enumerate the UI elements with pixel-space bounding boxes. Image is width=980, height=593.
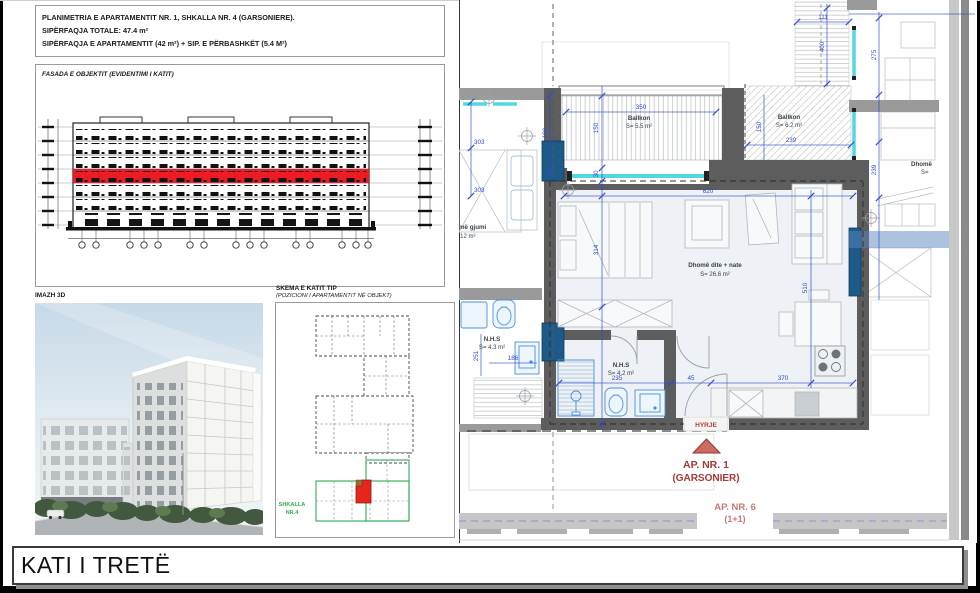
title-line-1: PLANIMETRIA E APARTAMENTIT NR. 1, SHKALL… — [42, 11, 444, 24]
corridor-band-left — [459, 513, 697, 529]
dim-239-h: 239 — [786, 137, 797, 144]
neighbor-terrace — [474, 378, 542, 418]
dim-239-v: 239 — [871, 164, 878, 175]
car-wheel — [49, 516, 52, 519]
balcony2-name: Ballkon — [778, 114, 801, 121]
stove — [815, 346, 845, 376]
dim-350: 350 — [636, 104, 647, 111]
balcony1-name: Ballkon — [628, 115, 651, 122]
dim-45: 45 — [687, 375, 695, 382]
axis-bubbles — [79, 242, 371, 248]
window-row — [76, 129, 366, 140]
floor-outline — [316, 316, 413, 463]
bath1-area: S= 4.2 m² — [608, 371, 634, 377]
facade-label: FASADA E OBJEKTIT (EVIDENTIMI I KATIT) — [42, 71, 174, 78]
roof-parapet — [290, 117, 332, 123]
balcony2-area: S= 6.2 m² — [776, 123, 802, 129]
dim-620: 620 — [703, 188, 714, 195]
corner-pillar — [253, 372, 261, 502]
axis-droplines — [82, 231, 368, 243]
title-block: PLANIMETRIA E APARTAMENTIT NR. 1, SHKALL… — [35, 5, 445, 57]
building-left-windows — [43, 423, 127, 497]
living-name: Dhomë dite + nate — [688, 262, 742, 269]
dim-150-r: 150 — [756, 121, 763, 132]
figure — [68, 221, 72, 227]
stair-label-2: NR.4 — [286, 510, 300, 516]
window-row — [76, 157, 366, 168]
highlighted-apartment-notch — [356, 480, 362, 486]
bath2-area: S= 4.3 m² — [479, 345, 505, 351]
main-building-lit-face — [187, 361, 255, 509]
dim-111: 111 — [818, 14, 828, 21]
roof-parapet — [100, 117, 142, 123]
bath1-name: N.H.S — [613, 362, 630, 369]
facade-drawing — [38, 105, 442, 251]
title-line-2: SIPËRFAQJA TOTALE: 47.4 m² — [42, 24, 444, 37]
car-wheel — [58, 516, 61, 519]
key-plan-subtitle: (POZICIONI I APARTAMENTIT NË OBJEKT) — [276, 293, 392, 299]
apartment1-label: AP. NR. 1 — [683, 459, 729, 471]
title-line-3: SIPËRFAQJA E APARTAMENTIT (42 m²) + SIP.… — [42, 37, 444, 50]
window-cap — [567, 171, 572, 181]
window-row-highlighted — [76, 171, 366, 182]
neighbor-room-area: S= — [921, 170, 929, 176]
dim-400: 400 — [819, 41, 826, 52]
dim-251: 251 — [473, 350, 480, 361]
dim-303a: 303 — [474, 139, 485, 146]
dim-275: 275 — [871, 49, 878, 60]
edge-strip-light — [949, 0, 959, 540]
car — [47, 510, 64, 517]
window-row — [76, 143, 366, 154]
stair-label-1: SHKALLA — [279, 502, 306, 508]
dim-314: 314 — [593, 244, 600, 255]
bath2-name: N.H.S — [484, 336, 501, 343]
balcony1-area: S= 5.5 m² — [626, 124, 652, 130]
dim-370: 370 — [778, 375, 789, 382]
dim-30: 30 — [593, 170, 600, 178]
image3d-label: IMAZH 3D — [35, 292, 65, 299]
sheet-title-bar: KATI I TRETË — [12, 546, 964, 585]
sheet-title: KATI I TRETË — [14, 552, 171, 579]
neighbor-room-name: Dhomë — [911, 161, 933, 168]
balcony1-railing — [559, 86, 724, 95]
render-3d — [35, 303, 263, 535]
corridor-band — [849, 231, 949, 248]
page-border-left — [0, 0, 3, 593]
key-plan-panel: SHKALLA NR.4 — [275, 302, 455, 538]
ground-line — [66, 227, 376, 231]
key-plan-title: SKEMA E KATIT TIP — [276, 285, 337, 292]
figure — [371, 221, 375, 227]
facade-panel: FASADA E OBJEKTIT (EVIDENTIMI I KATIT) — [35, 64, 445, 287]
architectural-sheet: { "title_block": { "line1": "PLANIMETRIA… — [0, 0, 980, 593]
edge-strip-dark — [961, 0, 969, 540]
window-row — [76, 199, 366, 210]
key-plan-drawing: SHKALLA NR.4 — [276, 303, 454, 537]
page-border-bottom — [0, 586, 980, 593]
dim-303b: 303 — [474, 187, 485, 194]
dim-510: 510 — [802, 282, 809, 293]
ap6-line2: (1+1) — [724, 514, 745, 524]
dim-150: 150 — [593, 122, 600, 133]
roof-parapet — [188, 117, 234, 123]
apartment1-type: (GARSONIER) — [672, 473, 739, 484]
neighbor-bedroom-name: Dhomë gjumi — [459, 224, 486, 231]
main-building-windows — [137, 383, 183, 511]
neighbor-bedroom-area: S= 12 m² — [459, 234, 476, 240]
dim-186: 186 — [508, 355, 519, 362]
window-row — [76, 185, 366, 196]
ap6-line1: AP. NR. 6 — [714, 502, 756, 513]
storefront-row — [76, 213, 366, 226]
dim-190: 190 — [542, 127, 549, 138]
living-area: S= 26.6 m² — [700, 272, 730, 278]
floor-plan: 350 150 30 314 190 620 303 303 186 251 2… — [459, 0, 977, 543]
window-cap — [704, 171, 709, 181]
entrance-label: HYRJE — [695, 422, 717, 429]
